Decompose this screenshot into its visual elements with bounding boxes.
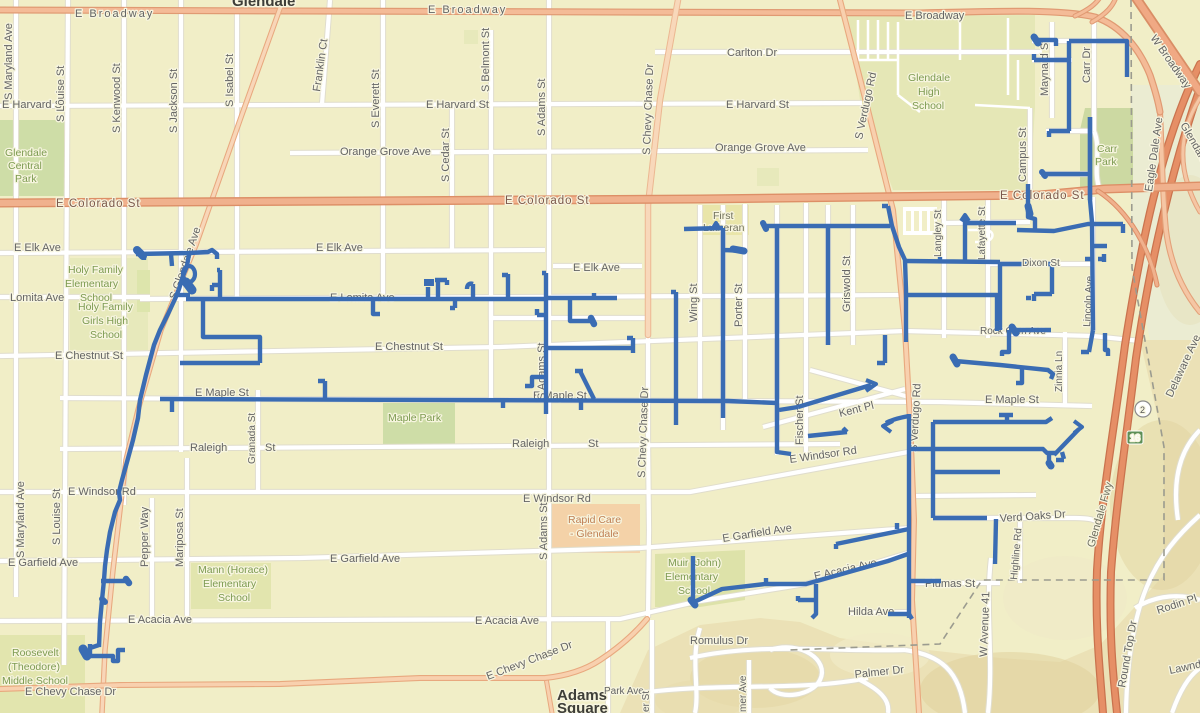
svg-text:S Louise St: S Louise St (55, 66, 67, 122)
svg-text:Lomita Ave: Lomita Ave (10, 292, 64, 304)
svg-text:Square: Square (557, 700, 608, 713)
svg-text:S Louise St: S Louise St (51, 489, 63, 545)
svg-text:E Colorado St: E Colorado St (1000, 190, 1085, 202)
svg-text:Dixon St: Dixon St (1022, 258, 1060, 269)
svg-text:Zinnia Ln: Zinnia Ln (1054, 351, 1065, 392)
svg-text:E Broadway: E Broadway (75, 8, 154, 20)
svg-text:Middle School: Middle School (2, 675, 68, 687)
svg-text:S Cedar St: S Cedar St (440, 128, 452, 182)
svg-text:Holy Family: Holy Family (68, 264, 124, 276)
svg-text:Lafayette St: Lafayette St (977, 206, 988, 260)
svg-text:Orange Grove Ave: Orange Grove Ave (715, 142, 806, 154)
svg-text:Glendale: Glendale (232, 0, 295, 10)
svg-text:E Acacia Ave: E Acacia Ave (475, 615, 539, 627)
svg-text:St: St (588, 438, 598, 450)
svg-text:Maynard St: Maynard St (1039, 40, 1051, 96)
svg-text:S Maryland Ave: S Maryland Ave (3, 23, 15, 100)
svg-text:Campus St: Campus St (1017, 128, 1029, 182)
svg-text:E Colorado St: E Colorado St (505, 195, 590, 207)
svg-text:Park: Park (1095, 156, 1117, 168)
svg-text:Maple Park: Maple Park (388, 412, 442, 424)
svg-text:E Colorado St: E Colorado St (56, 198, 141, 210)
svg-text:Wing St: Wing St (688, 283, 700, 322)
svg-text:mer Ave: mer Ave (738, 675, 749, 712)
svg-text:Orange Grove Ave: Orange Grove Ave (340, 146, 431, 158)
svg-text:E Elk Ave: E Elk Ave (14, 242, 61, 254)
svg-text:Carr: Carr (1097, 143, 1118, 155)
svg-text:E Chestnut St: E Chestnut St (55, 350, 123, 362)
svg-text:E Garfield Ave: E Garfield Ave (330, 553, 400, 565)
svg-text:Pepper Way: Pepper Way (139, 506, 151, 567)
svg-text:St: St (265, 442, 275, 454)
svg-text:er St: er St (641, 691, 652, 712)
svg-text:Langley St: Langley St (933, 210, 944, 257)
svg-text:Mariposa St: Mariposa St (174, 508, 186, 567)
svg-text:W Avenue 41: W Avenue 41 (978, 591, 992, 657)
svg-text:Carr Dr: Carr Dr (1081, 47, 1093, 83)
svg-text:(Theodore): (Theodore) (8, 661, 60, 673)
svg-text:E Elk Ave: E Elk Ave (316, 242, 363, 254)
svg-text:Hilda Ave: Hilda Ave (848, 606, 894, 618)
svg-text:S Jackson St: S Jackson St (168, 69, 180, 133)
svg-text:- Glendale: - Glendale (570, 528, 619, 540)
svg-text:Roosevelt: Roosevelt (12, 647, 59, 659)
svg-text:E Acacia Ave: E Acacia Ave (128, 614, 192, 626)
svg-text:S Isabel St: S Isabel St (224, 54, 236, 107)
svg-text:E Harvard St: E Harvard St (426, 99, 489, 111)
svg-text:Rapid Care: Rapid Care (568, 514, 621, 526)
svg-text:School: School (218, 592, 250, 604)
svg-text:Porter St: Porter St (733, 284, 745, 327)
svg-text:Glendale: Glendale (5, 147, 47, 159)
svg-text:E Harvard St: E Harvard St (726, 99, 789, 111)
svg-text:Romulus Dr: Romulus Dr (690, 635, 748, 647)
svg-text:E Maple St: E Maple St (985, 394, 1039, 406)
svg-text:Park: Park (15, 173, 37, 185)
svg-text:High: High (918, 86, 940, 98)
svg-text:Carlton Dr: Carlton Dr (727, 47, 777, 59)
svg-text:2: 2 (1140, 405, 1145, 415)
svg-text:S Everett St: S Everett St (370, 69, 382, 128)
svg-text:16: 16 (1130, 433, 1140, 443)
svg-text:Mann (Horace): Mann (Horace) (198, 564, 268, 576)
svg-text:Raleigh: Raleigh (512, 438, 549, 450)
svg-text:E Chestnut St: E Chestnut St (375, 341, 443, 353)
svg-text:S Adams St: S Adams St (536, 79, 548, 136)
svg-text:First: First (713, 210, 733, 222)
svg-text:Glendale: Glendale (908, 72, 950, 84)
svg-text:S Kenwood St: S Kenwood St (111, 63, 123, 133)
svg-text:S Maryland Ave: S Maryland Ave (15, 481, 27, 558)
svg-text:E Broadway: E Broadway (428, 4, 507, 16)
svg-text:Elementary: Elementary (65, 278, 119, 290)
svg-text:Granada St: Granada St (247, 413, 258, 464)
svg-text:Holy Family: Holy Family (78, 301, 134, 313)
svg-text:E Broadway: E Broadway (905, 10, 965, 22)
svg-text:E Elk Ave: E Elk Ave (573, 262, 620, 274)
svg-text:S Adams St: S Adams St (538, 503, 550, 560)
svg-text:Park Ave: Park Ave (604, 686, 644, 697)
svg-text:School: School (912, 100, 944, 112)
svg-text:Girls High: Girls High (82, 315, 128, 327)
svg-text:Elementary: Elementary (203, 578, 257, 590)
svg-text:E Chevy Chase Dr: E Chevy Chase Dr (25, 686, 116, 698)
svg-text:E Windsor Rd: E Windsor Rd (523, 493, 591, 505)
svg-text:E Windsor Rd: E Windsor Rd (68, 486, 136, 498)
svg-text:S Belmont St: S Belmont St (480, 28, 492, 92)
svg-text:Griswold St: Griswold St (841, 256, 853, 312)
svg-text:Raleigh: Raleigh (190, 442, 227, 454)
svg-text:School: School (90, 329, 122, 341)
svg-text:Central: Central (8, 160, 42, 172)
